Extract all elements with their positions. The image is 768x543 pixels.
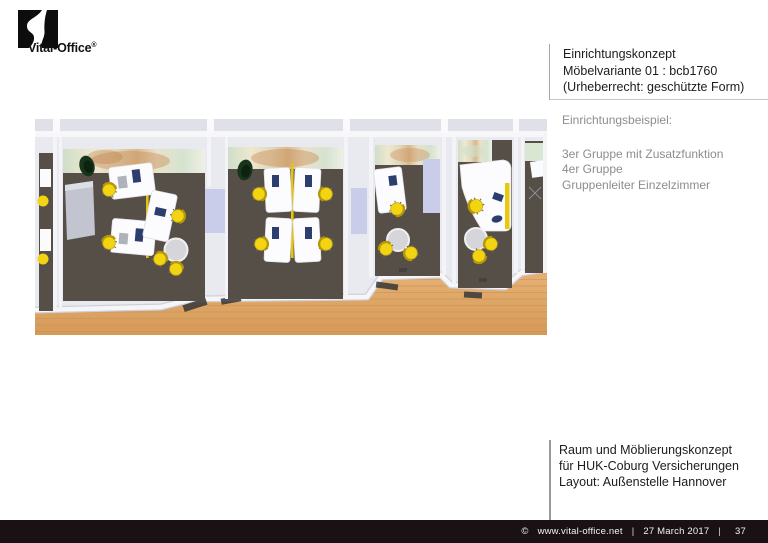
logo-wordmark: Vital-Office® xyxy=(28,41,96,55)
project-title: Raum und Möblierungskonzept xyxy=(559,442,764,458)
concept-header: Einrichtungskonzept Möbelvariante 01 : b… xyxy=(549,44,768,100)
room-partial-right xyxy=(525,141,546,273)
desk-edge xyxy=(505,183,510,229)
slide-page: Vital-Office® xyxy=(0,0,768,543)
footer-website: www.vital-office.net xyxy=(538,526,623,537)
vital-office-logo: Vital-Office® xyxy=(18,10,138,58)
floor-plan-rendering xyxy=(35,113,547,335)
page-number: 37 xyxy=(735,526,746,537)
room-gruppenleiter xyxy=(458,140,512,288)
desk xyxy=(108,162,156,199)
copyright-symbol: © xyxy=(521,526,528,537)
room-3er-gruppe xyxy=(63,149,205,301)
project-client: für HUK-Coburg Versicherungen xyxy=(559,458,764,474)
example-title: Einrichtungsbeispiel: xyxy=(562,113,762,129)
footer-separator: | xyxy=(718,526,721,537)
example-item-gruppenleiter: Gruppenleiter Einzelzimmer xyxy=(562,178,762,194)
footer-separator: | xyxy=(632,526,635,537)
example-block: Einrichtungsbeispiel: 3er Gruppe mit Zus… xyxy=(562,113,762,193)
furniture-variant: Möbelvariante 01 : bcb1760 xyxy=(563,63,768,80)
office-chair xyxy=(251,186,267,202)
footer-date: 27 March 2017 xyxy=(643,526,709,537)
project-layout: Layout: Außenstelle Hannover xyxy=(559,474,764,490)
example-item-4er-gruppe: 4er Gruppe xyxy=(562,162,762,178)
sideboard xyxy=(351,188,367,234)
room-partial-left xyxy=(38,153,54,311)
sideboard xyxy=(205,189,228,233)
example-item-3er-gruppe: 3er Gruppe mit Zusatzfunktion xyxy=(562,147,762,163)
office-chair xyxy=(318,186,334,202)
copyright-note: (Urheberrecht: geschützte Form) xyxy=(563,79,768,96)
sideboard xyxy=(423,159,440,213)
concept-title: Einrichtungskonzept xyxy=(563,46,768,63)
project-block: Raum und Möblierungskonzept für HUK-Cobu… xyxy=(549,440,764,521)
room-zusatzfunktion xyxy=(373,145,440,276)
footer-bar: © www.vital-office.net | 27 March 2017 |… xyxy=(0,520,768,543)
